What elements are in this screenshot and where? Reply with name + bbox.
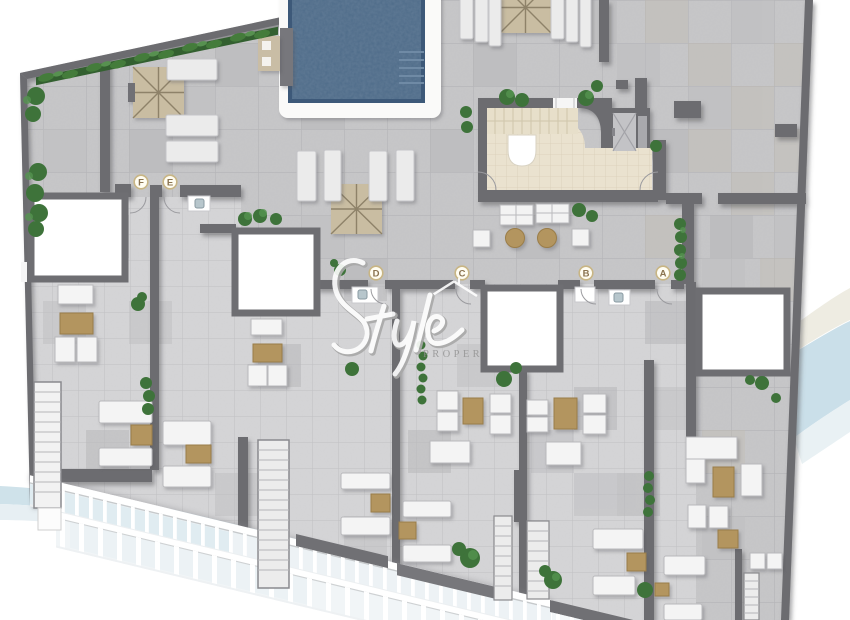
- svg-text:F: F: [138, 178, 144, 189]
- svg-text:D: D: [373, 269, 380, 280]
- svg-text:PROPER: PROPER: [423, 349, 483, 360]
- svg-text:E: E: [167, 178, 173, 189]
- svg-text:C: C: [459, 269, 466, 280]
- svg-text:A: A: [660, 269, 667, 280]
- svg-text:B: B: [583, 269, 590, 280]
